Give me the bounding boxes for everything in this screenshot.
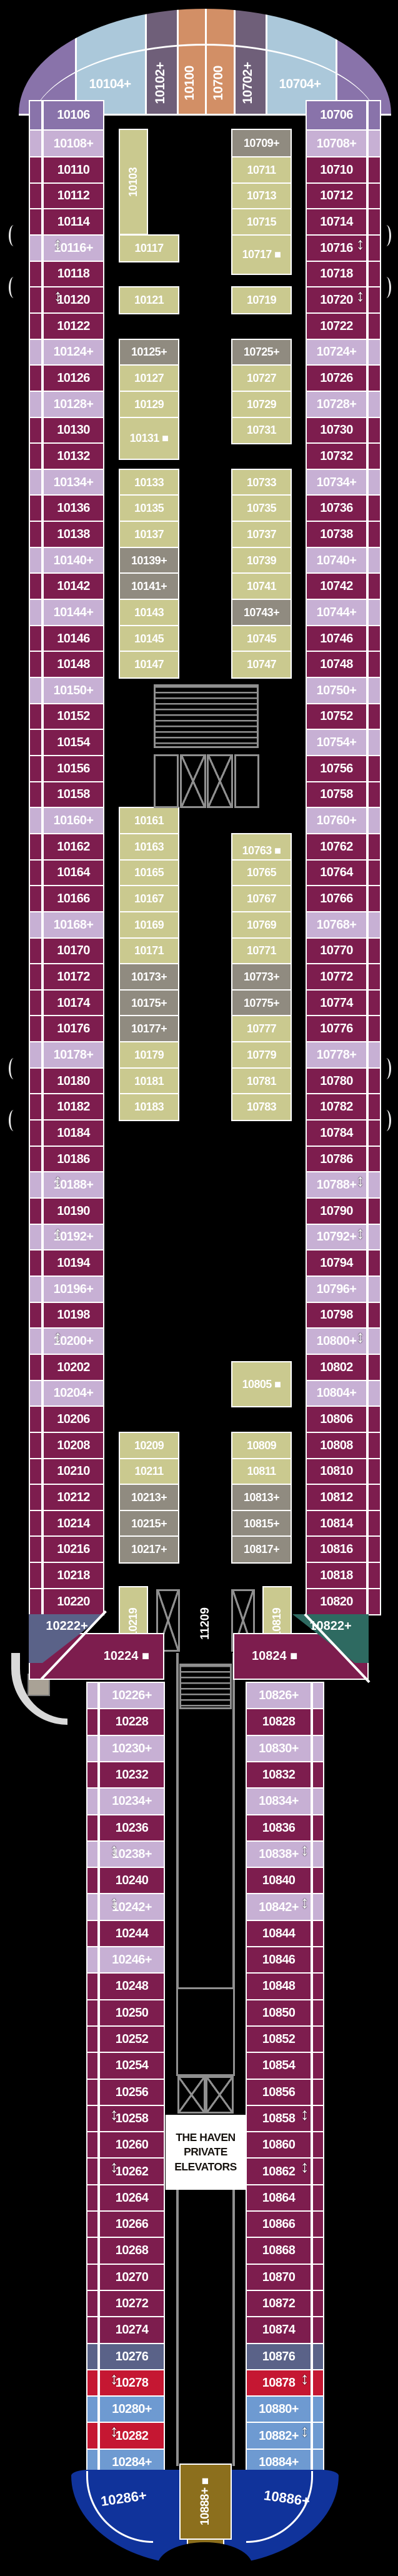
- cabin-label: 10174: [57, 996, 90, 1011]
- cabin-10209[interactable]: 10209: [119, 1432, 179, 1460]
- cabin-10190[interactable]: 10190: [42, 1197, 104, 1226]
- balcony-strip: [29, 100, 42, 131]
- cabin-label: 10786: [320, 1152, 353, 1167]
- balcony-strip: [367, 989, 381, 1017]
- cabin-10745[interactable]: 10745: [231, 625, 292, 653]
- cabin-10856[interactable]: 10856: [246, 2079, 312, 2107]
- cabin-label: 10765: [247, 866, 276, 879]
- cabin-10154[interactable]: 10154: [42, 729, 104, 757]
- cabin-10773+[interactable]: 10773+: [231, 963, 292, 991]
- cabin-10168+[interactable]: 10168+: [42, 911, 104, 939]
- cabin-10758[interactable]: 10758: [306, 781, 367, 809]
- cabin-10848[interactable]: 10848: [246, 1972, 312, 2000]
- cabin-10733[interactable]: 10733: [231, 469, 292, 497]
- cabin-label: 10874: [262, 2323, 296, 2337]
- cabin-10204+[interactable]: 10204+: [42, 1380, 104, 1408]
- balcony-strip: [367, 1484, 381, 1512]
- cabin-10140+[interactable]: 10140+: [42, 547, 104, 575]
- cabin-label: 10166: [57, 892, 90, 906]
- cabin-10202[interactable]: 10202: [42, 1354, 104, 1382]
- cabin-10864[interactable]: 10864: [246, 2184, 312, 2212]
- cabin-10160+[interactable]: 10160+: [42, 807, 104, 835]
- cabin-10150+[interactable]: 10150+: [42, 677, 104, 705]
- cabin-10872[interactable]: 10872: [246, 2290, 312, 2318]
- cabin-10128+[interactable]: 10128+: [42, 391, 104, 419]
- cabin-10234+[interactable]: 10234+: [99, 1787, 165, 1815]
- cabin-10710[interactable]: 10710: [306, 156, 367, 184]
- cabin-label: 10792+: [317, 1230, 357, 1244]
- cabin-label: 10736: [320, 501, 353, 516]
- cabin-10779[interactable]: 10779: [231, 1041, 292, 1069]
- cabin-10217+[interactable]: 10217+: [119, 1535, 179, 1564]
- cabin-10744+[interactable]: 10744+: [306, 599, 367, 627]
- cabin-10802[interactable]: 10802: [306, 1354, 367, 1382]
- cabin-10776[interactable]: 10776: [306, 1015, 367, 1043]
- cabin-10790[interactable]: 10790: [306, 1197, 367, 1226]
- cabin-10104[interactable]: [75, 9, 145, 114]
- cabin-10834+[interactable]: 10834+: [246, 1787, 312, 1815]
- cabin-10135[interactable]: 10135: [119, 494, 179, 522]
- cabin-10188+[interactable]: 10188+: [42, 1171, 104, 1199]
- cabin-10766[interactable]: 10766: [306, 885, 367, 913]
- cabin-10124+[interactable]: 10124+: [42, 339, 104, 367]
- cabin-10127[interactable]: 10127: [119, 364, 179, 392]
- cabin-label: 10184: [57, 1126, 90, 1141]
- cabin-label: 10218: [57, 1569, 90, 1583]
- cabin-10748[interactable]: 10748: [306, 651, 367, 679]
- cabin-10781[interactable]: 10781: [231, 1067, 292, 1096]
- cabin-10270[interactable]: 10270: [99, 2264, 165, 2292]
- cabin-10264[interactable]: 10264: [99, 2184, 165, 2212]
- cabin-10811[interactable]: 10811: [231, 1458, 292, 1486]
- cabin-10177+[interactable]: 10177+: [119, 1015, 179, 1043]
- cabin-10715[interactable]: 10715: [231, 208, 292, 236]
- cabin-10826+[interactable]: 10826+: [246, 1682, 312, 1710]
- cabin-10767[interactable]: 10767: [231, 885, 292, 913]
- cabin-10746[interactable]: 10746: [306, 625, 367, 653]
- elevator[interactable]: [207, 754, 233, 808]
- cabin-10260[interactable]: 10260: [99, 2131, 165, 2159]
- cabin-10756[interactable]: 10756: [306, 755, 367, 783]
- cabin-10186[interactable]: 10186: [42, 1146, 104, 1174]
- cabin-10724+[interactable]: 10724+: [306, 339, 367, 367]
- cabin-10198[interactable]: 10198: [42, 1302, 104, 1330]
- cabin-10717[interactable]: 10717 ■: [231, 234, 292, 275]
- cabin-10778+[interactable]: 10778+: [306, 1041, 367, 1069]
- cabin-10244[interactable]: 10244: [99, 1920, 165, 1948]
- balcony-strip: [29, 755, 42, 783]
- cabin-10163[interactable]: 10163: [119, 833, 179, 861]
- cabin-10218[interactable]: 10218: [42, 1562, 104, 1590]
- cabin-label: 10816: [320, 1542, 353, 1557]
- cabin-label: 10790: [320, 1204, 353, 1219]
- cabin-10818[interactable]: 10818: [306, 1562, 367, 1590]
- cabin-10173+[interactable]: 10173+: [119, 963, 179, 991]
- balcony-strip: [312, 1946, 324, 1974]
- cabin-10114[interactable]: 10114: [42, 208, 104, 236]
- cabin-label-10704: 10704+: [279, 77, 321, 92]
- balcony-strip: [29, 182, 42, 211]
- cabin-10782[interactable]: 10782: [306, 1093, 367, 1121]
- cabin-10242+[interactable]: 10242+: [99, 1893, 165, 1921]
- balcony-strip: [29, 1405, 42, 1434]
- cabin-label: 10129: [134, 398, 164, 411]
- balcony-strip: [29, 1249, 42, 1277]
- cabin-10740+[interactable]: 10740+: [306, 547, 367, 575]
- cabin-10876[interactable]: 10876: [246, 2343, 312, 2371]
- cabin-10760+[interactable]: 10760+: [306, 807, 367, 835]
- balcony-strip: [29, 494, 42, 522]
- cabin-10161[interactable]: 10161: [119, 807, 179, 835]
- cabin-10228[interactable]: 10228: [99, 1708, 165, 1736]
- cabin-10146[interactable]: 10146: [42, 625, 104, 653]
- cabin-10210[interactable]: 10210: [42, 1458, 104, 1486]
- cabin-label: 10714: [320, 215, 353, 229]
- cabin-10750+[interactable]: 10750+: [306, 677, 367, 705]
- cabin-label: 10240: [116, 1874, 149, 1888]
- cabin-10112[interactable]: 10112: [42, 182, 104, 211]
- cabin-10722[interactable]: 10722: [306, 312, 367, 341]
- balcony-strip: [29, 312, 42, 341]
- cabin-10709+[interactable]: 10709+: [231, 129, 292, 158]
- cabin-10176[interactable]: 10176: [42, 1015, 104, 1043]
- cabin-10142[interactable]: 10142: [42, 572, 104, 601]
- cabin-10121[interactable]: 10121: [119, 286, 179, 314]
- cabin-10230+[interactable]: 10230+: [99, 1735, 165, 1763]
- cabin-10809[interactable]: 10809: [231, 1432, 292, 1460]
- cabin-10240[interactable]: 10240: [99, 1867, 165, 1895]
- cabin-10844[interactable]: 10844: [246, 1920, 312, 1948]
- cabin-10810[interactable]: 10810: [306, 1458, 367, 1486]
- balcony-strip: [312, 2422, 324, 2450]
- cabin-10888[interactable]: 10888+ ■: [179, 2464, 232, 2540]
- cabin-10729[interactable]: 10729: [231, 391, 292, 419]
- cabin-10172[interactable]: 10172: [42, 963, 104, 991]
- cabin-10770[interactable]: 10770: [306, 937, 367, 966]
- cabin-10280+[interactable]: 10280+: [99, 2395, 165, 2424]
- cabin-10731[interactable]: 10731: [231, 417, 292, 445]
- cabin-10133[interactable]: 10133: [119, 469, 179, 497]
- cabin-10170[interactable]: 10170: [42, 937, 104, 966]
- balcony-strip: [367, 417, 381, 445]
- cabin-10214[interactable]: 10214: [42, 1510, 104, 1538]
- balcony-strip: [86, 2369, 99, 2397]
- cabin-10868[interactable]: 10868: [246, 2237, 312, 2265]
- cabin-10765[interactable]: 10765: [231, 859, 292, 887]
- cabin-10132[interactable]: 10132: [42, 442, 104, 471]
- cabin-10704[interactable]: [266, 9, 336, 114]
- cabin-10813+[interactable]: 10813+: [231, 1484, 292, 1512]
- cabin-10165[interactable]: 10165: [119, 859, 179, 887]
- cabin-10727[interactable]: 10727: [231, 364, 292, 392]
- cabin-10735[interactable]: 10735: [231, 494, 292, 522]
- cabin-10108+[interactable]: 10108+: [42, 129, 104, 158]
- cabin-10122[interactable]: 10122: [42, 312, 104, 341]
- cabin-10262[interactable]: 10262: [99, 2157, 165, 2185]
- cabin-10129[interactable]: 10129: [119, 391, 179, 419]
- cabin-10814[interactable]: 10814: [306, 1510, 367, 1538]
- cabin-10805[interactable]: 10805 ■: [231, 1361, 292, 1407]
- cabin-10236[interactable]: 10236: [99, 1814, 165, 1842]
- cabin-10216[interactable]: 10216: [42, 1535, 104, 1564]
- cabin-label: 10266: [116, 2217, 149, 2232]
- cabin-10846[interactable]: 10846: [246, 1946, 312, 1974]
- cabin-10144+[interactable]: 10144+: [42, 599, 104, 627]
- cabin-10798[interactable]: 10798: [306, 1302, 367, 1330]
- cabin-label: 10752: [320, 709, 353, 724]
- cabin-10771[interactable]: 10771: [231, 937, 292, 966]
- cabin-10769[interactable]: 10769: [231, 911, 292, 939]
- cabin-10768+[interactable]: 10768+: [306, 911, 367, 939]
- cabin-10158[interactable]: 10158: [42, 781, 104, 809]
- cabin-10118[interactable]: 10118: [42, 261, 104, 289]
- cabin-10775+[interactable]: 10775+: [231, 989, 292, 1017]
- cabin-10246+[interactable]: 10246+: [99, 1946, 165, 1974]
- cabin-10817+[interactable]: 10817+: [231, 1535, 292, 1564]
- cabin-10743+[interactable]: 10743+: [231, 599, 292, 627]
- elevator[interactable]: [180, 754, 206, 808]
- cabin-10828[interactable]: 10828: [246, 1708, 312, 1736]
- cabin-10274[interactable]: 10274: [99, 2316, 165, 2344]
- cabin-10741[interactable]: 10741: [231, 572, 292, 601]
- cabin-10134+[interactable]: 10134+: [42, 469, 104, 497]
- cabin-10726[interactable]: 10726: [306, 364, 367, 392]
- cabin-10806[interactable]: 10806: [306, 1405, 367, 1434]
- cabin-10784[interactable]: 10784: [306, 1119, 367, 1147]
- cabin-10268[interactable]: 10268: [99, 2237, 165, 2265]
- cabin-label: 10802: [320, 1360, 353, 1375]
- cabin-10212[interactable]: 10212: [42, 1484, 104, 1512]
- cabin-label: 10784: [320, 1126, 353, 1141]
- cabin-label: 10276: [116, 2350, 149, 2364]
- cabin-label: 10739: [247, 554, 276, 567]
- cabin-10832[interactable]: 10832: [246, 1761, 312, 1789]
- cabin-10874[interactable]: 10874: [246, 2316, 312, 2344]
- balcony-strip: [29, 651, 42, 679]
- balcony-strip: [367, 1015, 381, 1043]
- balcony-strip: [86, 1972, 99, 2000]
- cabin-10816[interactable]: 10816: [306, 1535, 367, 1564]
- cabin-10200+[interactable]: 10200+: [42, 1327, 104, 1355]
- cabin-10226+[interactable]: 10226+: [99, 1682, 165, 1710]
- cabin-10272[interactable]: 10272: [99, 2290, 165, 2318]
- cabin-10764[interactable]: 10764: [306, 859, 367, 887]
- cabin-10215+[interactable]: 10215+: [119, 1510, 179, 1538]
- cabin-10238+[interactable]: 10238+: [99, 1840, 165, 1869]
- balcony-strip: [29, 807, 42, 835]
- cabin-10708+[interactable]: 10708+: [306, 129, 367, 158]
- cabin-label: 10147: [134, 658, 164, 671]
- cabin-10178+[interactable]: 10178+: [42, 1041, 104, 1069]
- cabin-10820[interactable]: 10820: [306, 1588, 367, 1616]
- cabin-10794[interactable]: 10794: [306, 1249, 367, 1277]
- cabin-10711[interactable]: 10711: [231, 156, 292, 184]
- cabin-10141+[interactable]: 10141+: [119, 572, 179, 601]
- cabin-10110[interactable]: 10110: [42, 156, 104, 184]
- cabin-10171[interactable]: 10171: [119, 937, 179, 966]
- cabin-10116+[interactable]: 10116+: [42, 234, 104, 262]
- cabin-label: 10750+: [317, 684, 357, 698]
- balcony-strip: [312, 2237, 324, 2265]
- cabin-10780[interactable]: 10780: [306, 1067, 367, 1096]
- cabin-10213+[interactable]: 10213+: [119, 1484, 179, 1512]
- cabin-10256[interactable]: 10256: [99, 2079, 165, 2107]
- cabin-10739[interactable]: 10739: [231, 547, 292, 575]
- cabin-10808[interactable]: 10808: [306, 1432, 367, 1460]
- cabin-10130[interactable]: 10130: [42, 417, 104, 445]
- cabin-10747[interactable]: 10747: [231, 651, 292, 679]
- cabin-label: 10727: [247, 372, 276, 385]
- cabin-10786[interactable]: 10786: [306, 1146, 367, 1174]
- cabin-10713[interactable]: 10713: [231, 182, 292, 211]
- cabin-10220[interactable]: 10220: [42, 1588, 104, 1616]
- cabin-10250[interactable]: 10250: [99, 1999, 165, 2027]
- cabin-label: 10740+: [317, 554, 357, 568]
- cabin-10728+[interactable]: 10728+: [306, 391, 367, 419]
- cabin-10252[interactable]: 10252: [99, 2025, 165, 2054]
- cabin-10730[interactable]: 10730: [306, 417, 367, 445]
- cabin-10762[interactable]: 10762: [306, 833, 367, 861]
- cabin-10138[interactable]: 10138: [42, 521, 104, 549]
- balcony-strip: [29, 1562, 42, 1590]
- cabin-10167[interactable]: 10167: [119, 885, 179, 913]
- cabin-10182[interactable]: 10182: [42, 1093, 104, 1121]
- cabin-10266[interactable]: 10266: [99, 2210, 165, 2239]
- cabin-label: 10127: [134, 372, 164, 385]
- cabin-10880+[interactable]: 10880+: [246, 2395, 312, 2424]
- cabin-10854[interactable]: 10854: [246, 2052, 312, 2080]
- cabin-10725+[interactable]: 10725+: [231, 339, 292, 367]
- balcony-strip: [86, 2316, 99, 2344]
- cabin-10866[interactable]: 10866: [246, 2210, 312, 2239]
- balcony-strip: [86, 2157, 99, 2185]
- balcony-strip: [312, 1972, 324, 2000]
- cabin-label: 10194: [57, 1256, 90, 1271]
- cabin-10103[interactable]: 10103: [119, 129, 148, 235]
- cabin-label: 10210: [57, 1464, 90, 1479]
- cabin-label: 10838+: [259, 1847, 299, 1862]
- cabin-10208[interactable]: 10208: [42, 1432, 104, 1460]
- cabin-10850[interactable]: 10850: [246, 1999, 312, 2027]
- cabin-10169[interactable]: 10169: [119, 911, 179, 939]
- cabin-10106[interactable]: 10106: [42, 100, 104, 131]
- cabin-10148[interactable]: 10148: [42, 651, 104, 679]
- cabin-10812[interactable]: 10812: [306, 1484, 367, 1512]
- balcony-strip: [29, 1276, 42, 1304]
- cabin-10137[interactable]: 10137: [119, 521, 179, 549]
- cabin-10248[interactable]: 10248: [99, 1972, 165, 2000]
- balcony-strip: [86, 1920, 99, 1948]
- cabin-label: 10818: [320, 1569, 353, 1583]
- cabin-10126[interactable]: 10126: [42, 364, 104, 392]
- cabin-10166[interactable]: 10166: [42, 885, 104, 913]
- cabin-10282[interactable]: 10282: [99, 2422, 165, 2450]
- cabin-10162[interactable]: 10162: [42, 833, 104, 861]
- cabin-10830+[interactable]: 10830+: [246, 1735, 312, 1763]
- cabin-10752[interactable]: 10752: [306, 703, 367, 731]
- cabin-10179[interactable]: 10179: [119, 1041, 179, 1069]
- cabin-10181[interactable]: 10181: [119, 1067, 179, 1096]
- cabin-10714[interactable]: 10714: [306, 208, 367, 236]
- cabin-10836[interactable]: 10836: [246, 1814, 312, 1842]
- haven-elevator[interactable]: [206, 2076, 234, 2114]
- elevator-shaft: [176, 1987, 235, 2076]
- cabin-10734+[interactable]: 10734+: [306, 469, 367, 497]
- cabin-10175+[interactable]: 10175+: [119, 989, 179, 1017]
- cabin-10777[interactable]: 10777: [231, 1015, 292, 1043]
- cabin-10712[interactable]: 10712: [306, 182, 367, 211]
- cabin-10156[interactable]: 10156: [42, 755, 104, 783]
- cabin-10774[interactable]: 10774: [306, 989, 367, 1017]
- cabin-10206[interactable]: 10206: [42, 1405, 104, 1434]
- cabin-10258[interactable]: 10258: [99, 2105, 165, 2133]
- cabin-10840[interactable]: 10840: [246, 1867, 312, 1895]
- cabin-10184[interactable]: 10184: [42, 1119, 104, 1147]
- cabin-10254[interactable]: 10254: [99, 2052, 165, 2080]
- cabin-10718[interactable]: 10718: [306, 261, 367, 289]
- cabin-10796+[interactable]: 10796+: [306, 1276, 367, 1304]
- cabin-10870[interactable]: 10870: [246, 2264, 312, 2292]
- cabin-10145[interactable]: 10145: [119, 625, 179, 653]
- cabin-10736[interactable]: 10736: [306, 494, 367, 522]
- cabin-10180[interactable]: 10180: [42, 1067, 104, 1096]
- cabin-10772[interactable]: 10772: [306, 963, 367, 991]
- cabin-10194[interactable]: 10194: [42, 1249, 104, 1277]
- cabin-10815+[interactable]: 10815+: [231, 1510, 292, 1538]
- cabin-label: 10768+: [317, 918, 357, 932]
- cabin-10125+[interactable]: 10125+: [119, 339, 179, 367]
- cabin-10164[interactable]: 10164: [42, 859, 104, 887]
- cabin-10742[interactable]: 10742: [306, 572, 367, 601]
- cabin-10139+[interactable]: 10139+: [119, 547, 179, 575]
- cabin-10120[interactable]: 10120: [42, 286, 104, 314]
- cabin-10278[interactable]: 10278: [99, 2369, 165, 2397]
- balcony-strip: [312, 2264, 324, 2292]
- cabin-10276[interactable]: 10276: [99, 2343, 165, 2371]
- cabin-label: 10713: [247, 189, 276, 202]
- cabin-10192+[interactable]: 10192+: [42, 1224, 104, 1252]
- cabin-10738[interactable]: 10738: [306, 521, 367, 549]
- cabin-10783[interactable]: 10783: [231, 1093, 292, 1121]
- cabin-10196+[interactable]: 10196+: [42, 1276, 104, 1304]
- cabin-10852[interactable]: 10852: [246, 2025, 312, 2054]
- cabin-10131[interactable]: 10131 ■: [119, 417, 179, 461]
- balcony-strip: [29, 1093, 42, 1121]
- balcony-strip: [367, 494, 381, 522]
- cabin-10860[interactable]: 10860: [246, 2131, 312, 2159]
- cabin-10183[interactable]: 10183: [119, 1093, 179, 1121]
- cabin-10719[interactable]: 10719: [231, 286, 292, 314]
- cabin-10117[interactable]: 10117: [119, 234, 179, 262]
- cabin-10732[interactable]: 10732: [306, 442, 367, 471]
- cabin-10804+[interactable]: 10804+: [306, 1380, 367, 1408]
- cabin-10136[interactable]: 10136: [42, 494, 104, 522]
- cabin-label: 10798: [320, 1308, 353, 1322]
- cabin-10737[interactable]: 10737: [231, 521, 292, 549]
- cabin-label: 10248: [116, 1979, 149, 1994]
- cabin-label: 10272: [116, 2297, 149, 2311]
- cabin-10754+[interactable]: 10754+: [306, 729, 367, 757]
- cabin-10211[interactable]: 10211: [119, 1458, 179, 1486]
- cabin-10152[interactable]: 10152: [42, 703, 104, 731]
- cabin-10147[interactable]: 10147: [119, 651, 179, 679]
- cabin-10706[interactable]: 10706: [306, 100, 367, 131]
- cabin-10232[interactable]: 10232: [99, 1761, 165, 1789]
- haven-elevator[interactable]: [177, 2076, 206, 2114]
- cabin-10174[interactable]: 10174: [42, 989, 104, 1017]
- cabin-10143[interactable]: 10143: [119, 599, 179, 627]
- cabin-label: 10880+: [259, 2402, 299, 2417]
